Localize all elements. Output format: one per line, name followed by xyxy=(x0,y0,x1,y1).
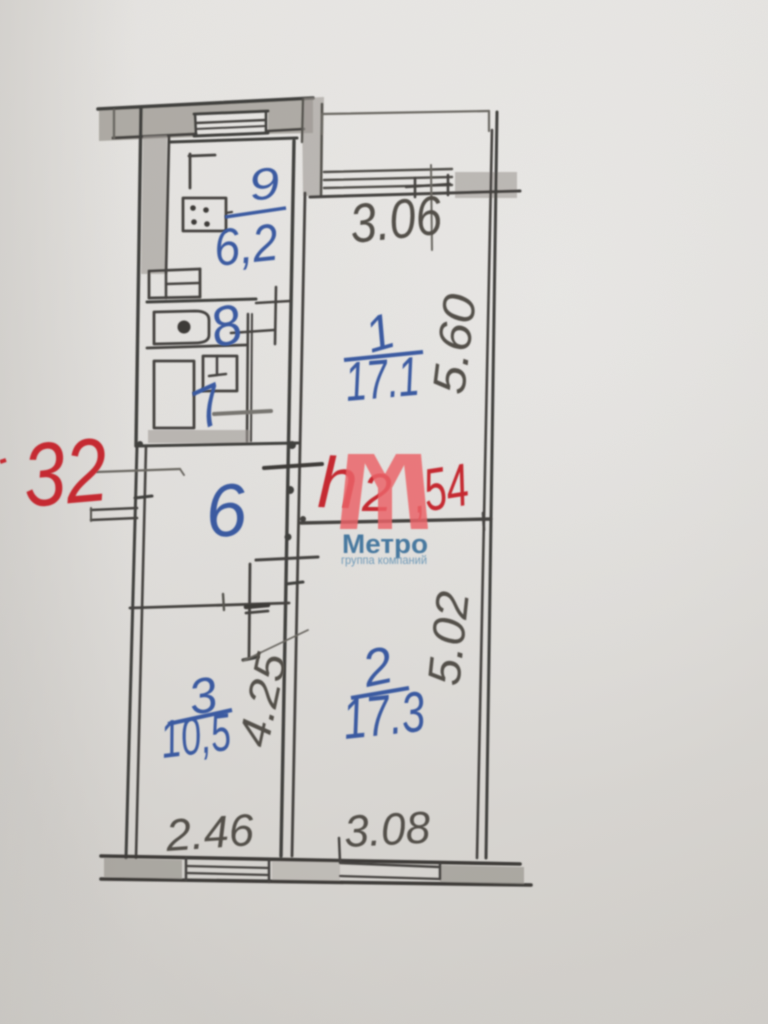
svg-text:10,5: 10,5 xyxy=(157,703,234,770)
svg-text:группа компаний: группа компаний xyxy=(341,553,427,567)
svg-text:17.1: 17.1 xyxy=(343,345,422,413)
svg-text:6,2: 6,2 xyxy=(211,214,281,278)
svg-text:5.02: 5.02 xyxy=(417,589,479,688)
svg-text:3.08: 3.08 xyxy=(343,802,432,857)
svg-text:17.3: 17.3 xyxy=(340,680,428,752)
svg-text:2.46: 2.46 xyxy=(163,804,256,861)
svg-text:32: 32 xyxy=(19,420,111,527)
svg-text:3.06: 3.06 xyxy=(347,184,445,255)
